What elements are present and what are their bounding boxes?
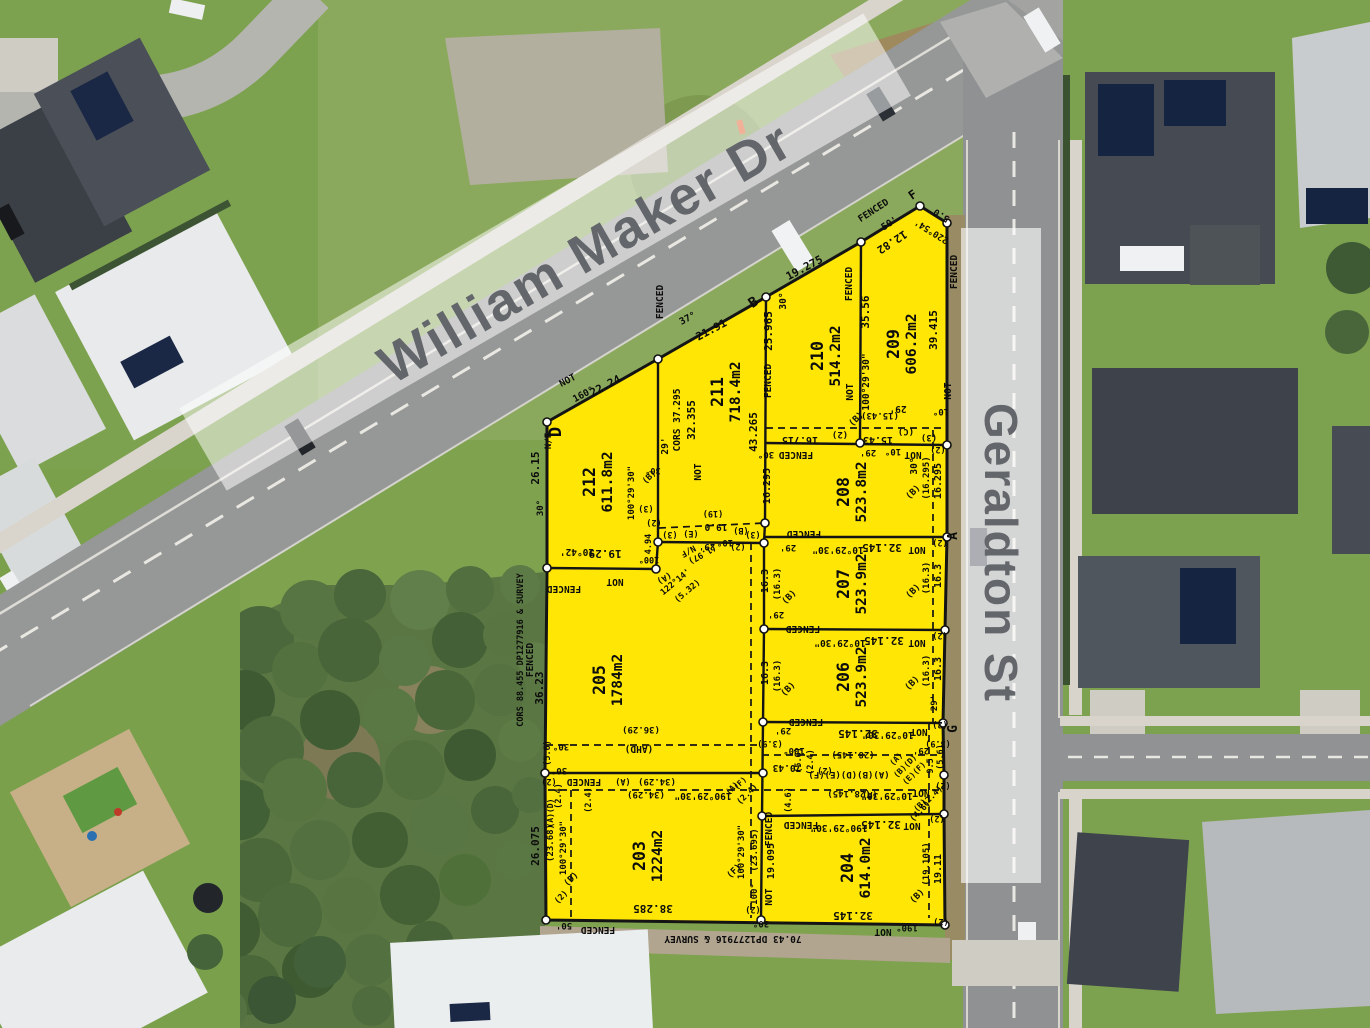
dimension-label: FENCED: [763, 364, 774, 399]
tree: [362, 687, 418, 743]
survey-node: [543, 564, 551, 572]
dimension-label: (2): [646, 517, 661, 527]
survey-node: [654, 355, 662, 363]
dimension-label: NOT: [903, 820, 920, 831]
dimension-label: (A): [615, 776, 630, 786]
corner-letter: D: [546, 427, 566, 437]
dimension-label: 32.145: [864, 634, 904, 647]
dimension-label: (2): [745, 904, 760, 914]
dimension-label: 100°29'30": [861, 353, 872, 410]
dimension-label: (34.29): [638, 776, 676, 786]
dimension-label: 100°29'30": [559, 821, 569, 875]
dimension-label: (2): [929, 813, 944, 823]
tree: [1325, 310, 1369, 354]
solar-panels: [1306, 188, 1368, 224]
dimension-label: (19.105): [922, 842, 932, 885]
driveway: [0, 38, 58, 92]
play-equipment: [114, 808, 122, 816]
dimension-label: 32.145: [833, 909, 873, 922]
dimension-label: 29': [660, 437, 671, 454]
dimension-label: 16.295: [762, 468, 773, 504]
dimension-label: (2): [930, 444, 945, 454]
dimension-label: (C): [898, 426, 914, 436]
dimension-label: FENCED: [547, 583, 582, 594]
dimension-label: 29': [780, 542, 796, 552]
tree: [352, 986, 392, 1026]
dimension-label: 16.3: [760, 569, 771, 593]
driveway: [1190, 225, 1260, 285]
dimension-label: 19.29: [588, 547, 621, 560]
dimension-label: (28.145): [831, 749, 874, 759]
lot-boundary-line: [547, 568, 656, 569]
dimension-label: (AHD): [625, 743, 654, 754]
driveway: [952, 940, 1060, 986]
dimension-label: (2): [730, 541, 745, 551]
aerial-survey-map: NOT160°22.2437°21.9119.275FENCED50'12.82…: [0, 0, 1370, 1028]
tree: [334, 569, 386, 621]
dimension-label: 29': [768, 609, 784, 619]
lot-area: 514.2m2: [828, 325, 844, 386]
house-roof: [1202, 810, 1370, 1014]
dimension-label: NOT: [764, 888, 775, 905]
tree: [471, 786, 519, 834]
tree: [446, 566, 494, 614]
tree: [379, 634, 431, 686]
dimension-label: 29': [775, 725, 791, 735]
dimension-label: (34.29): [627, 789, 665, 799]
dimension-label: 15.43: [863, 434, 893, 445]
vehicle: [1120, 246, 1184, 271]
dimension-label: NOT: [874, 926, 891, 937]
lot-area: 718.4m2: [728, 361, 744, 422]
tree: [187, 934, 223, 970]
dimension-label: 16.295: [933, 463, 944, 499]
dimension-label: 19.095: [766, 843, 777, 879]
solar-panels: [1180, 568, 1236, 644]
dimension-label: (3): [745, 529, 760, 539]
dimension-label: (16.3): [773, 660, 783, 693]
tree: [263, 758, 327, 822]
dimension-label: FENCED: [581, 924, 616, 935]
house-roof: [1067, 832, 1189, 991]
tree: [248, 976, 296, 1024]
house-roof: [390, 929, 654, 1028]
dimension-label: NOT: [606, 576, 623, 587]
dimension-label: 16.3: [933, 657, 944, 681]
tree: [415, 670, 475, 730]
dimension-label: 190°29'30": [810, 822, 867, 833]
dimension-label: (2): [932, 630, 947, 640]
dimension-label: (3): [638, 503, 653, 513]
dimension-label: (E): [683, 528, 698, 538]
tree: [294, 936, 346, 988]
dimension-label: FENCED: [779, 449, 814, 460]
dimension-label: 4.94: [644, 534, 654, 554]
dimension-label: 16.3: [933, 564, 944, 588]
lot-area: 611.8m2: [600, 451, 616, 512]
survey-node: [759, 769, 767, 777]
dimension-label: 10°29'30": [862, 729, 913, 740]
dimension-label: 19.11: [933, 854, 944, 884]
dimension-label: FENCED: [525, 643, 536, 678]
dimension-label: 100°: [750, 883, 760, 905]
dimension-label: 10°29'30": [812, 544, 863, 555]
trampoline: [193, 883, 223, 913]
dimension-label: FENCED: [787, 528, 822, 539]
dimension-label: 70.43: [772, 762, 801, 773]
dimension-label: 30°: [536, 500, 546, 516]
dimension-label: 30°: [645, 465, 660, 475]
lot-number: 210: [808, 341, 827, 371]
solar-panels: [450, 1002, 491, 1022]
survey-node: [542, 916, 550, 924]
dimension-label: (2.4): [584, 787, 594, 813]
hedge: [1063, 75, 1070, 685]
lot-area: 523.9m2: [854, 553, 870, 614]
lot-number: 208: [834, 477, 853, 507]
dimension-label: (2.4): [554, 783, 564, 809]
aerial-photo: NOT160°22.2437°21.9119.275FENCED50'12.82…: [0, 0, 1370, 1028]
dimension-label: 50': [556, 920, 572, 930]
survey-node: [654, 538, 662, 546]
dimension-label: (19): [703, 508, 723, 518]
dimension-label: FENCED: [844, 267, 855, 302]
survey-node: [541, 769, 549, 777]
dimension-label: 30°: [753, 918, 769, 928]
dimension-label: (28.145): [827, 788, 870, 798]
lot-number: 207: [834, 569, 853, 599]
dimension-label: 16.715: [782, 434, 818, 445]
tree: [300, 690, 360, 750]
survey-node: [761, 519, 769, 527]
solar-panels: [1098, 84, 1154, 156]
tree: [344, 934, 396, 986]
dimension-label: 30°: [778, 292, 789, 309]
dimension-label: 10°: [885, 446, 901, 456]
survey-node: [916, 202, 924, 210]
dimension-label: (2): [832, 429, 848, 439]
dimension-label: (5.6): [936, 744, 946, 770]
dimension-label: (15.43): [861, 410, 899, 420]
dimension-label: (36.29): [622, 724, 660, 734]
dimension-label: 25.965: [762, 311, 775, 351]
solar-panels: [1164, 80, 1226, 126]
dimension-label: 100°: [639, 554, 659, 564]
dimension-label: 29': [930, 695, 940, 711]
dimension-label: 26.15: [529, 451, 542, 484]
survey-node: [760, 625, 768, 633]
dimension-label: FENCED: [655, 285, 666, 320]
dimension-label: (A)(D): [546, 799, 555, 828]
driveway: [1090, 690, 1145, 734]
lot-number: 204: [838, 853, 857, 883]
dimension-label: 190°: [896, 922, 918, 932]
lot-area: 523.8m2: [854, 461, 870, 522]
dimension-label: (3): [921, 432, 937, 442]
tree: [432, 612, 488, 668]
dimension-label: NOT: [908, 637, 925, 648]
tree: [327, 752, 383, 808]
lot-number: 209: [884, 329, 903, 359]
lot-number: 211: [708, 377, 727, 407]
dimension-label: FENCED: [764, 812, 775, 847]
dimension-label: (3): [662, 529, 677, 539]
house-roof: [1092, 368, 1298, 514]
dimension-label: 30°: [553, 741, 569, 751]
dimension-label: NOT: [943, 382, 954, 399]
dimension-label: 70.43 DP1277916 & SURVEY: [664, 933, 802, 944]
dimension-label: (23.695): [750, 828, 760, 871]
footpath: [1060, 716, 1370, 726]
dimension-label: NOT: [845, 383, 856, 400]
tree: [410, 795, 470, 855]
lot-number: 205: [590, 665, 609, 695]
survey-node: [543, 418, 551, 426]
dimension-label: 43.265: [747, 412, 760, 452]
lot-area: 614.0m2: [858, 837, 874, 898]
dimension-label: 10°: [933, 406, 949, 416]
tree: [385, 740, 445, 800]
dimension-label: 32.355: [685, 400, 698, 440]
survey-node: [762, 293, 770, 301]
dimension-label: 10°29'30": [814, 637, 865, 648]
dimension-label: (16.3): [922, 655, 932, 688]
dimension-label: FENCED: [949, 255, 960, 290]
house-roof: [1332, 426, 1370, 554]
tree: [322, 877, 378, 933]
tree: [380, 865, 440, 925]
dimension-label: 32.145: [861, 818, 901, 831]
dimension-label: 30°: [758, 449, 774, 459]
dimension-label: 29': [699, 541, 715, 551]
tree: [318, 618, 382, 682]
dimension-label: 32.145: [862, 541, 902, 554]
corner-letter: A: [946, 532, 961, 540]
corner-letter: G: [946, 725, 961, 733]
dimension-label: FENCED: [786, 623, 821, 634]
dimension-label: (23.68): [546, 824, 556, 862]
dimension-label: FENCED: [567, 776, 602, 787]
dimension-label: 16.3: [760, 661, 771, 685]
lot-area: 606.2m2: [904, 313, 920, 374]
dimension-label: 29': [860, 447, 876, 457]
dimension-label: (16.3): [922, 562, 932, 595]
play-equipment: [87, 831, 97, 841]
survey-node: [759, 718, 767, 726]
tree: [290, 820, 350, 880]
dimension-label: (16.295): [922, 456, 932, 499]
dimension-label: FENCED: [789, 716, 824, 727]
lot-area: 1784m2: [610, 654, 626, 706]
dimension-label: NOT: [910, 726, 927, 737]
dimension-label: 100°29'30": [627, 466, 637, 520]
survey-node: [856, 439, 864, 447]
dimension-label: CORS 88.455 DP1277916 & SURVEY: [516, 572, 526, 726]
dimension-label: (A)(B)(D)(E)(F): [808, 769, 889, 779]
dimension-label: (3.9): [757, 738, 783, 748]
dimension-label: 26.075: [529, 826, 542, 866]
survey-node: [857, 238, 865, 246]
lot-number: 206: [834, 662, 853, 692]
dimension-label: 19.0: [704, 521, 727, 532]
survey-node: [940, 771, 948, 779]
dimension-label: CORS 37.295: [672, 388, 683, 451]
survey-node: [652, 565, 660, 573]
tree: [352, 812, 408, 868]
dimension-label: NOT: [904, 449, 921, 460]
tree: [444, 729, 496, 781]
dimension-label: (5.6): [543, 740, 553, 766]
lot-area: 523.9m2: [854, 646, 870, 707]
driveway: [1300, 690, 1360, 734]
dimension-label: 30°: [551, 765, 567, 775]
lot-number: 212: [580, 467, 599, 497]
dimension-label: 190°29'30": [674, 790, 731, 801]
lot-number: 203: [630, 841, 649, 871]
survey-node: [760, 539, 768, 547]
dimension-label: 9.5: [926, 758, 936, 773]
dimension-label: (4.6): [784, 787, 794, 813]
tree: [439, 854, 491, 906]
dimension-label: (16.3): [773, 568, 783, 601]
dimension-label: 35.56: [859, 295, 872, 328]
lot-area: 1224m2: [650, 830, 666, 882]
dimension-label: (2): [933, 916, 948, 926]
street-label-geraldton-st: Geraldton St: [975, 403, 1027, 703]
dimension-label: NOT: [693, 463, 704, 480]
dimension-label: 39.415: [927, 310, 940, 350]
dimension-label: 38.285: [633, 902, 673, 915]
footpath: [1060, 789, 1370, 799]
dimension-label: NOT: [908, 544, 925, 555]
